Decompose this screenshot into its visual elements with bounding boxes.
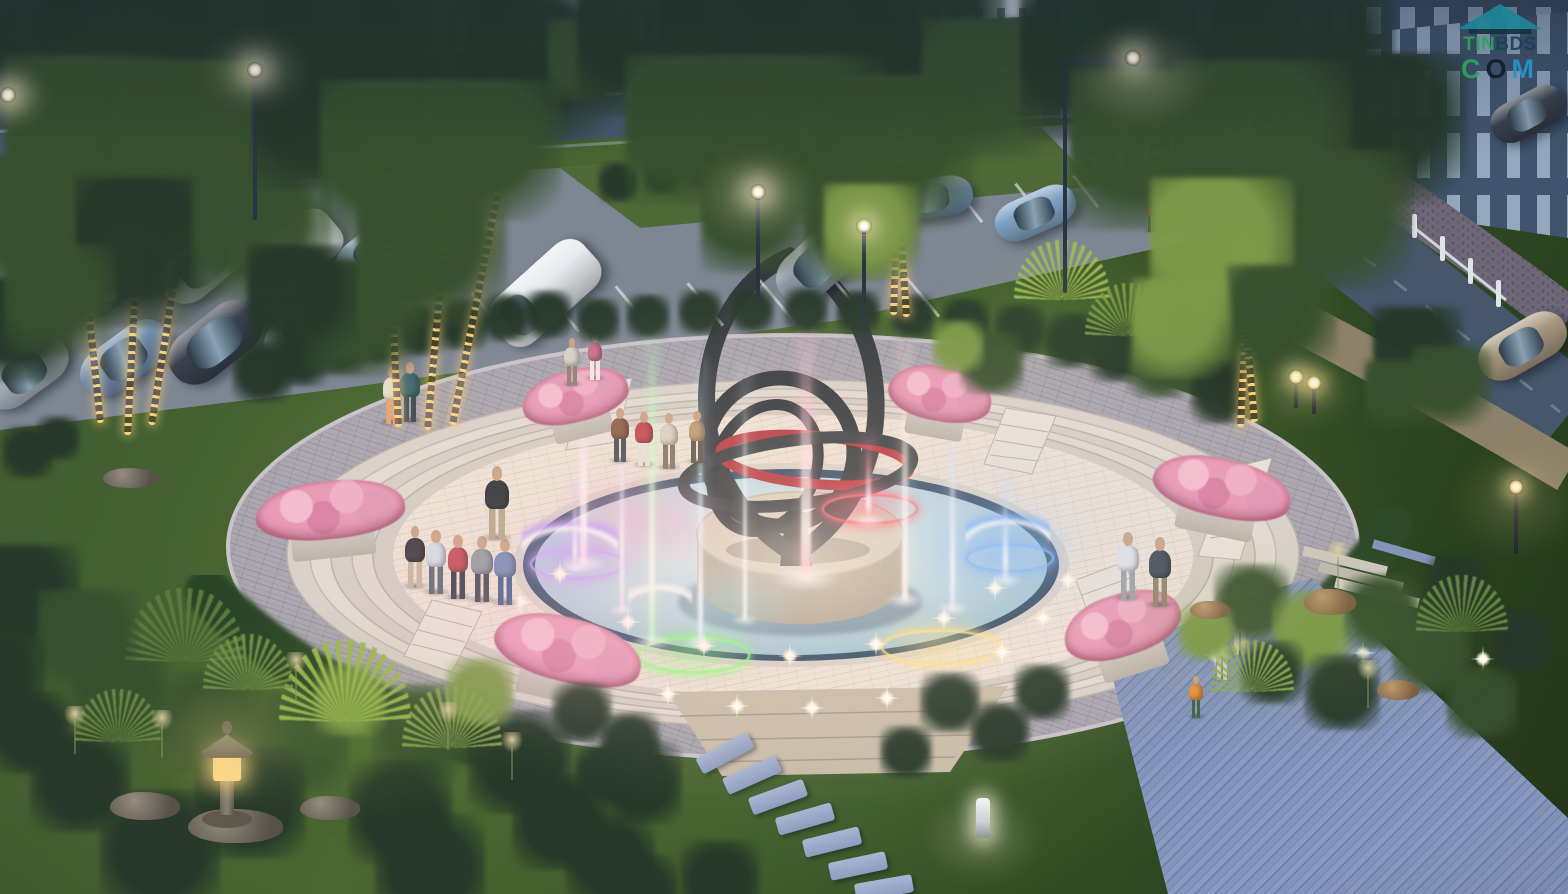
watermark-o: O bbox=[1485, 54, 1511, 84]
watermark-logo: TINBDS COM bbox=[1448, 4, 1552, 83]
ambient-light-glow bbox=[200, 30, 310, 110]
ambient-light-glow bbox=[930, 230, 1190, 390]
watermark-line1: TINBDS bbox=[1448, 35, 1552, 54]
ambient-light-glow bbox=[1090, 530, 1510, 750]
watermark-bds: BDS bbox=[1495, 34, 1537, 55]
architectural-render: TINBDS COM bbox=[0, 0, 1568, 894]
ambient-light-glow bbox=[697, 151, 817, 241]
watermark-c: C bbox=[1461, 54, 1486, 84]
watermark-m: M bbox=[1512, 54, 1540, 84]
ambient-light-glow bbox=[120, 610, 540, 830]
lighting-effects bbox=[0, 0, 1568, 894]
house-roof-icon bbox=[1458, 4, 1542, 29]
ambient-light-glow bbox=[923, 793, 1043, 883]
ambient-light-glow bbox=[1070, 25, 1210, 125]
watermark-line2: COM bbox=[1448, 56, 1552, 83]
ambient-light-glow bbox=[1250, 350, 1360, 430]
ambient-light-glow bbox=[0, 65, 48, 125]
watermark-tin: TIN bbox=[1463, 34, 1495, 55]
